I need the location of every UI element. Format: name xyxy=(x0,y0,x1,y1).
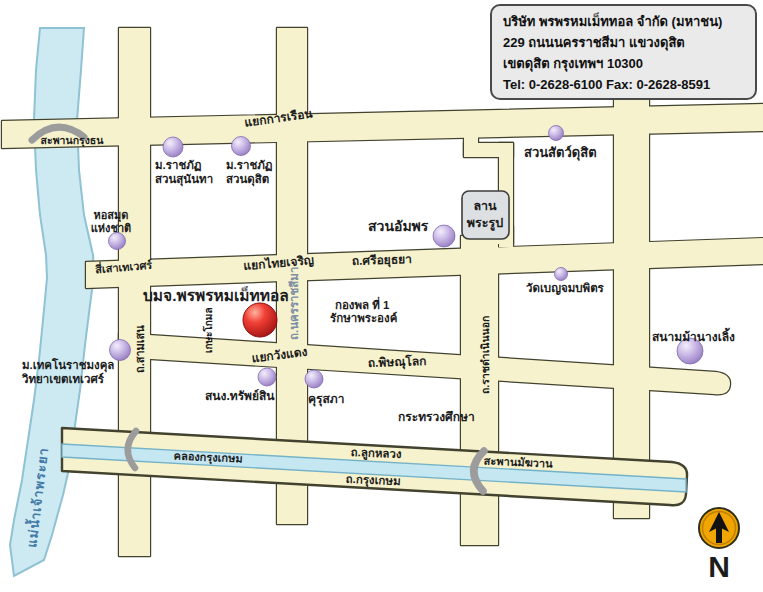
company-location-marker xyxy=(243,303,277,337)
crown-property-label: สนง.ทรัพย์สิน xyxy=(205,389,275,403)
company-title-line4: Tel: 0-2628-6100 Fax: 0-2628-8591 xyxy=(503,74,744,95)
poi-marker-rajabhat-sunandha xyxy=(163,137,183,157)
rajabhat-sunandha-label-line2: สวนสุนันทา xyxy=(155,173,213,187)
first-division-label-line1: กองพล ที่ 1 xyxy=(335,296,390,311)
ratchadamnoen-nok-road-label: ถ.ราชดำเนินนอก xyxy=(479,316,491,394)
poi-marker-rajabhat-dusit xyxy=(232,137,251,156)
compass-north-icon xyxy=(699,508,739,548)
poi-marker-crown-property xyxy=(258,368,276,386)
poi-marker-rajamangala xyxy=(110,340,131,361)
samsen-road-label: ถ.สามเสน xyxy=(134,325,146,373)
nakhon-ratchasima-road-label: ถ.นครราชสีมา xyxy=(288,267,300,340)
poi-marker-amphorn-garden xyxy=(433,225,455,247)
chao-phraya-river xyxy=(10,28,94,576)
company-title-line2: 229 ถนนนครราชสีมา แขวงดุสิต xyxy=(503,32,744,53)
kasa-komon-road-label: เกษะโกมล xyxy=(202,307,214,353)
company-title-card: บริษัท พรพรหมเม็ททอล จำกัด (มหาชน) 229 ถ… xyxy=(490,4,757,100)
map-page: ลาน พระรูป สะพานกรุงธน แยกการเรือน ม.ราช… xyxy=(0,0,763,592)
wat-benchamabophit-label: วัดเบญจมบพิตร xyxy=(526,282,605,295)
khurusapha-label: คุรุสภา xyxy=(308,392,344,407)
rajabhat-sunandha-label-line1: ม.ราชภัฏ xyxy=(155,159,202,172)
rajabhat-dusit-label-line2: สวนดุสิต xyxy=(226,173,269,187)
national-library-label-line2: แห่งชาติ xyxy=(91,222,132,234)
poi-marker-khurusapha xyxy=(305,370,323,388)
ministry-education-label: กระทรวงศึกษา xyxy=(398,410,475,424)
amphorn-garden-label: สวนอัมพร xyxy=(368,218,429,234)
company-title-line1: บริษัท พรพรหมเม็ททอล จำกัด (มหาชน) xyxy=(503,11,744,32)
rajamangala-label-line2: วิทยาเขตเทเวศร์ xyxy=(21,372,104,385)
rajabhat-dusit-label-line1: ม.ราชภัฏ xyxy=(226,159,273,172)
royal-plaza-label-line1: ลาน xyxy=(473,199,497,213)
rajamangala-label-line1: ม.เทคโนราชมงคุล xyxy=(22,357,114,373)
poi-marker-dusit-zoo xyxy=(549,126,564,141)
krung-thon-bridge-label: สะพานกรุงธน xyxy=(41,134,105,148)
dusit-zoo-label: สวนสัตว์ดุสิต xyxy=(524,145,597,161)
first-division-label-line2: รักษาพระองค์ xyxy=(330,311,397,324)
national-library-label-line1: หอสมุด xyxy=(94,209,129,223)
compass-north-letter: N xyxy=(708,550,730,583)
company-label: บมจ.พรพรหมเม็ททอล xyxy=(143,285,289,304)
company-title-line3: เขตดุสิต กรุงเทพฯ 10300 xyxy=(503,53,744,74)
poi-marker-wat-benchamabophit xyxy=(555,268,568,281)
poi-marker-national-library xyxy=(109,233,126,250)
royal-plaza-label-line2: พระรูป xyxy=(467,216,503,231)
nang-loeng-racecourse-label: สนามม้านางเลิ้ง xyxy=(652,327,735,344)
